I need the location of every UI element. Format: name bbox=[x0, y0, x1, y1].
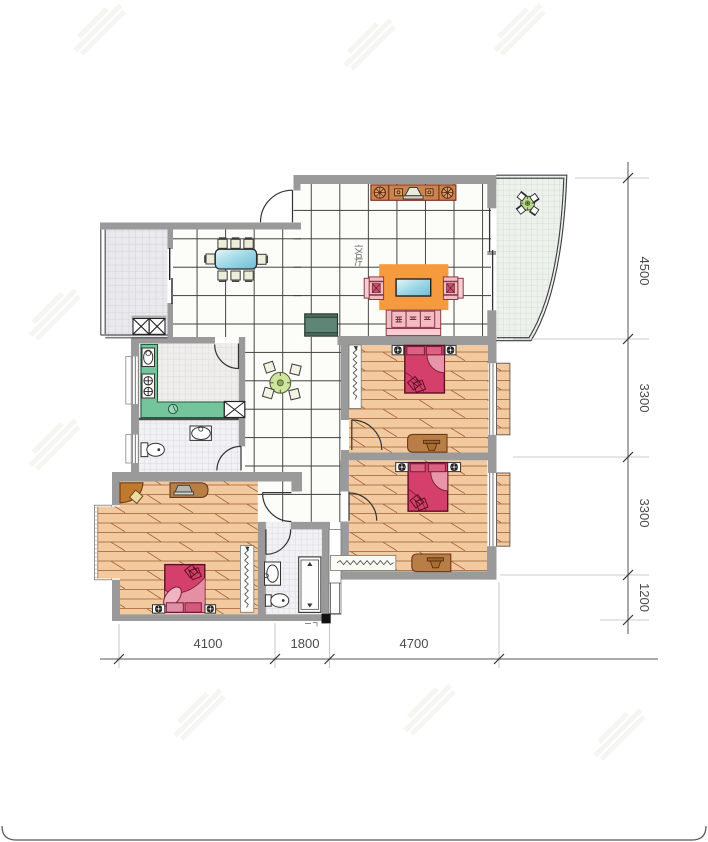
svg-text:3300: 3300 bbox=[637, 499, 652, 528]
svg-text:4700: 4700 bbox=[400, 636, 429, 651]
svg-text:1200: 1200 bbox=[637, 583, 652, 612]
svg-text:1800: 1800 bbox=[291, 636, 320, 651]
svg-text:4500: 4500 bbox=[637, 257, 652, 286]
svg-text:3300: 3300 bbox=[637, 384, 652, 413]
svg-text:4100: 4100 bbox=[194, 636, 223, 651]
